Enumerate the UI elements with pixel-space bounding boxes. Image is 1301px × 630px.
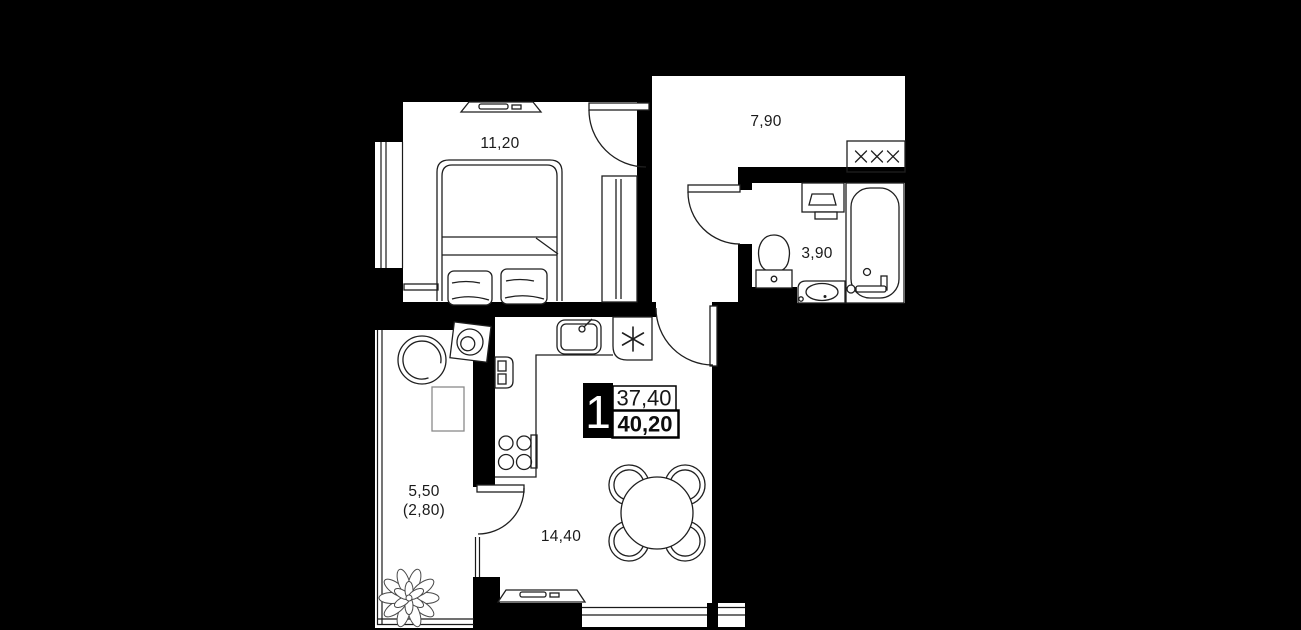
kitchen-door-opening [656, 302, 712, 317]
bathroom-door-opening [738, 190, 752, 244]
wardrobe [602, 176, 637, 302]
unit-area-top: 37,40 [616, 386, 671, 411]
bathroom-area-label: 3,90 [801, 245, 832, 262]
hallway-top-wall [652, 73, 905, 76]
dining-table [621, 477, 693, 549]
bathroom-door-leaf [688, 185, 740, 192]
bathtub-tap-knob [847, 285, 855, 293]
floor-plan-page: 1 37,40 40,20 11,20 7,90 3,90 14,40 5,50… [0, 0, 1301, 630]
kitchen-side-window-opening [473, 537, 495, 577]
pillow [501, 269, 547, 304]
kitchen-bottom-wall [495, 603, 582, 628]
unit-area-bottom: 40,20 [617, 412, 672, 437]
balcony-area-label-secondary: (2,80) [403, 502, 445, 519]
balcony-door-leaf [477, 485, 524, 492]
pillow [448, 271, 492, 305]
washer-dryer-unit [450, 322, 491, 362]
washing-machine [802, 183, 844, 212]
bedroom-window-sill [375, 142, 403, 268]
bedroom-door-leaf [589, 103, 649, 110]
bathroom-bottom-wall [738, 303, 905, 318]
floor-plan: 1 37,40 40,20 11,20 7,90 3,90 14,40 5,50… [0, 0, 1301, 630]
unit-badge: 1 37,40 40,20 [583, 383, 679, 438]
bathtub-faucet-bar [856, 286, 886, 292]
bottom-window-jamb [707, 603, 718, 627]
balcony-area-label: 5,50 [408, 483, 439, 500]
bedroom-top-wall [375, 88, 652, 102]
balcony-door-opening [473, 487, 495, 537]
plant-center [406, 595, 412, 601]
toilet-tank [756, 270, 792, 288]
unit-rooms-count: 1 [585, 386, 611, 438]
hallway-area-label: 7,90 [750, 113, 781, 130]
bedroom-right-wall [637, 96, 652, 306]
hallway-bathroom-wall [738, 167, 905, 183]
toilet-bowl [759, 235, 790, 272]
washing-machine-drawer [815, 212, 837, 219]
bedroom-area-label: 11,20 [480, 135, 519, 152]
kitchen-area-label: 14,40 [541, 528, 581, 545]
bathroom-shaft [738, 287, 797, 303]
washer-dryer-body [450, 322, 491, 362]
kitchen-door-leaf [710, 306, 717, 366]
bathtub [846, 183, 904, 303]
bathroom-sink-drain [824, 295, 827, 298]
